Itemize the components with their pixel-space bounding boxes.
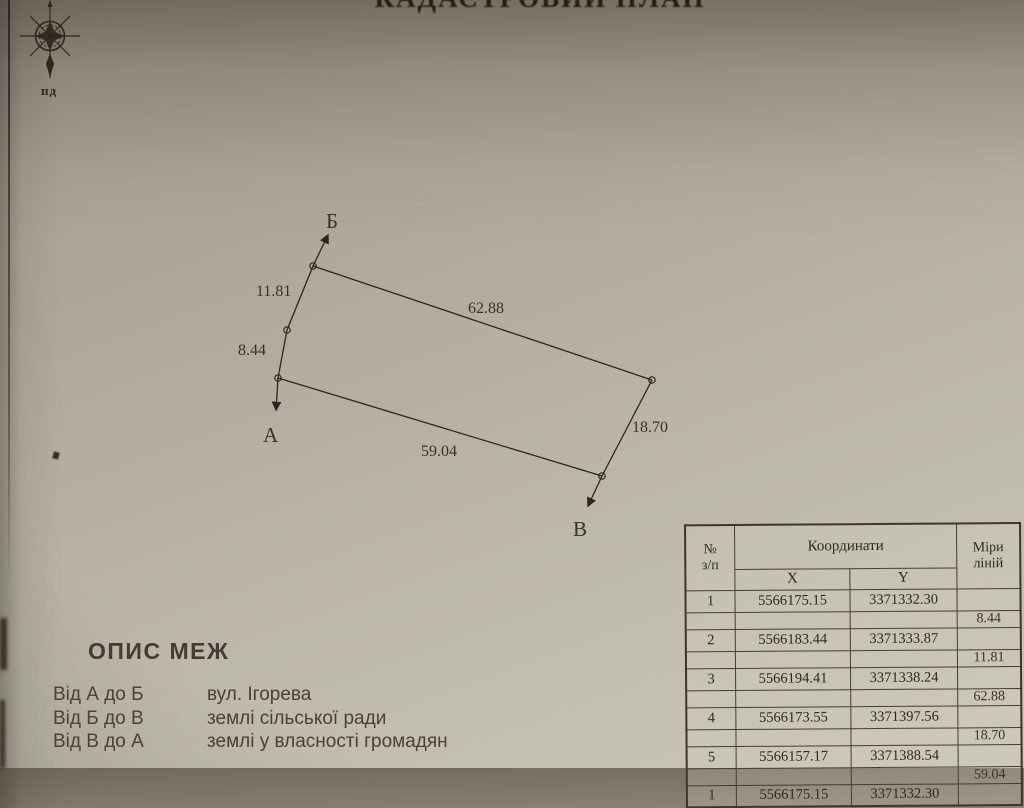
edge-length-11-81: 11.81 [256, 283, 291, 300]
boundary-description: землі у власності громадян [207, 731, 448, 753]
table-row: 25566183.443371333.87 [686, 627, 1021, 651]
survey-point-markers [275, 263, 655, 479]
point-label-b: Б [326, 209, 338, 233]
scanned-cadastral-plan-sheet: { "page": { "title_partial": "КАДАСТРОВИ… [0, 0, 1024, 768]
edge-length-18-70: 18.70 [632, 419, 668, 436]
parcel-boundary-lines [276, 235, 652, 506]
boundary-item: Від В до А землі у власності громадян [53, 731, 523, 755]
coordinates-table: № з/п Координати Міри ліній X Y 15566175… [684, 522, 1023, 808]
coordinates-table-container: № з/п Координати Міри ліній X Y 15566175… [684, 522, 1023, 808]
boundaries-heading: ОПИС МЕЖ [88, 638, 229, 665]
table-row: 15566175.153371332.30 [687, 783, 1022, 807]
boundary-item: Від Б до В землі сільської ради [53, 708, 523, 732]
col-header-y: Y [850, 567, 957, 589]
boundary-segment: Від Б до В [53, 708, 144, 730]
edge-length-8-44: 8.44 [238, 342, 266, 359]
direction-arrow-v [588, 476, 602, 506]
col-header-number: № з/п [685, 525, 735, 590]
point-label-v: В [573, 517, 587, 541]
col-header-x: X [735, 568, 850, 590]
table-row: 45566173.553371397.56 [686, 705, 1021, 729]
col-header-measure: Міри ліній [957, 523, 1021, 588]
boundaries-list: Від А до Б вул. Ігорева Від Б до В землі… [53, 684, 523, 755]
direction-arrow-b [313, 235, 328, 266]
table-row: 55566157.173371388.54 [687, 744, 1022, 768]
boundary-segment: Від В до А [53, 731, 144, 753]
boundary-description: вул. Ігорева [207, 684, 311, 706]
point-label-a: А [263, 423, 279, 447]
table-row: 35566194.413371338.24 [686, 666, 1021, 690]
col-header-coordinates: Координати [735, 523, 957, 569]
boundary-description: землі сільської ради [207, 708, 386, 730]
table-row: 15566175.153371332.30 [685, 588, 1020, 612]
edge-length-59-04: 59.04 [421, 443, 457, 460]
boundary-segment: Від А до Б [53, 684, 144, 706]
edge-length-62-88: 62.88 [468, 300, 504, 317]
boundary-item: Від А до Б вул. Ігорева [53, 684, 523, 708]
direction-arrow-a [276, 378, 278, 410]
